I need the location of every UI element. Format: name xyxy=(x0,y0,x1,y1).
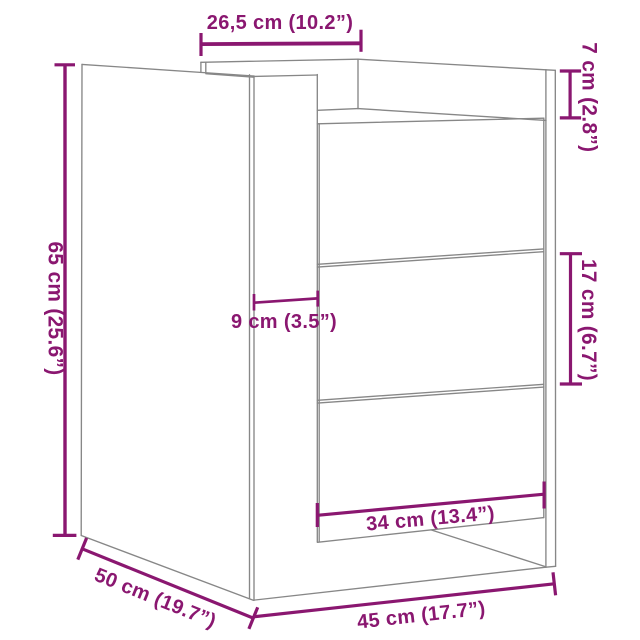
svg-text:17 cm (6.7”): 17 cm (6.7”) xyxy=(577,259,600,381)
svg-text:65 cm (25.6”): 65 cm (25.6”) xyxy=(44,241,67,375)
svg-text:9 cm (3.5”): 9 cm (3.5”) xyxy=(231,311,337,333)
svg-text:7 cm (2.8”): 7 cm (2.8”) xyxy=(578,42,601,152)
svg-text:26,5 cm (10.2”): 26,5 cm (10.2”) xyxy=(207,12,353,34)
